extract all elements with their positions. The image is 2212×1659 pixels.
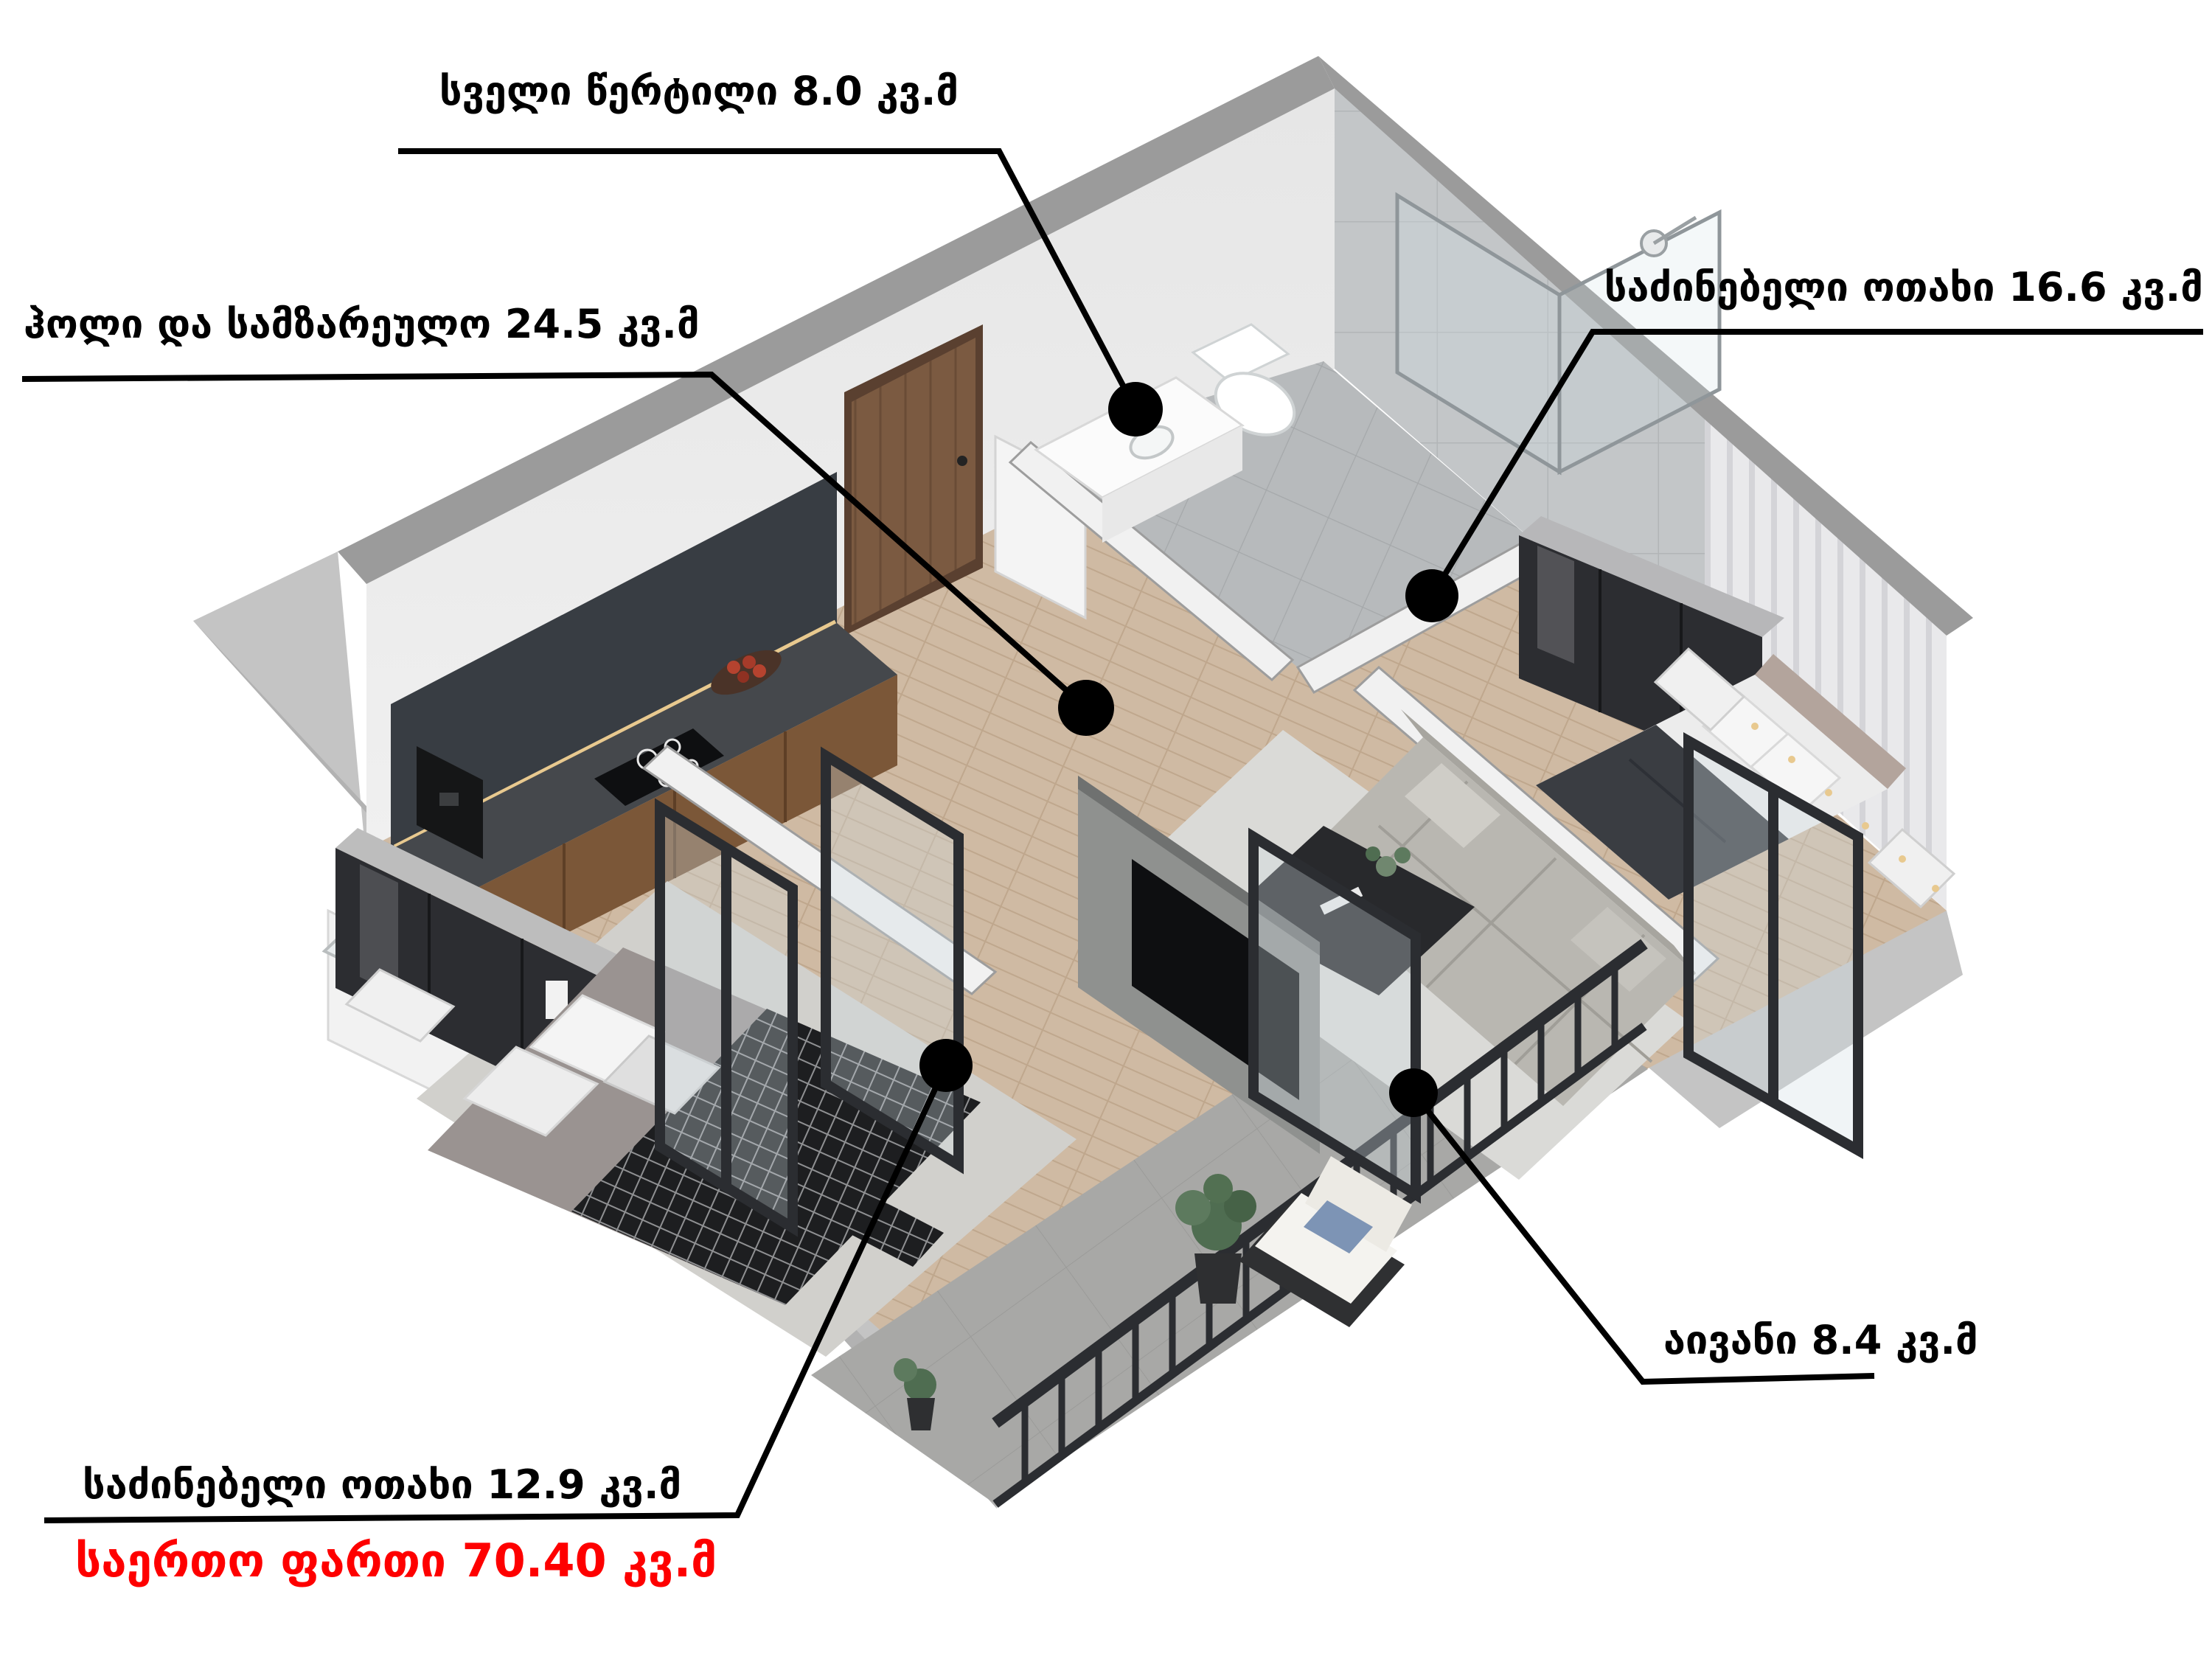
marker-hall-kitchen: [1058, 680, 1114, 736]
marker-balcony: [1389, 1068, 1438, 1117]
room-label-bedroom-2: საძინებელი ოთახი 12.9 კვ.მ: [83, 1461, 681, 1508]
floor-plan-render: [0, 0, 2212, 1659]
room-label-hall-kitchen: ჰოლი და სამზარეულო 24.5 კვ.მ: [24, 301, 700, 347]
total-area-label: საერთო ფართი 70.40 კვ.მ: [75, 1534, 717, 1587]
room-label-bedroom-1: საძინებელი ოთახი 16.6 კვ.მ: [1604, 264, 2203, 310]
marker-wet-point: [1108, 382, 1163, 437]
marker-bedroom-1: [1405, 569, 1458, 622]
room-label-wet-point: სველი წერტილი 8.0 კვ.მ: [398, 68, 1000, 114]
room-label-balcony: აივანი 8.4 კვ.მ: [1663, 1317, 1978, 1363]
marker-bedroom-2: [919, 1039, 973, 1092]
table-plant-icon: [1376, 856, 1397, 877]
door-handle: [957, 456, 967, 466]
floor-plan-page: სველი წერტილი 8.0 კვ.მ ჰოლი და სამზარეულ…: [0, 0, 2212, 1659]
